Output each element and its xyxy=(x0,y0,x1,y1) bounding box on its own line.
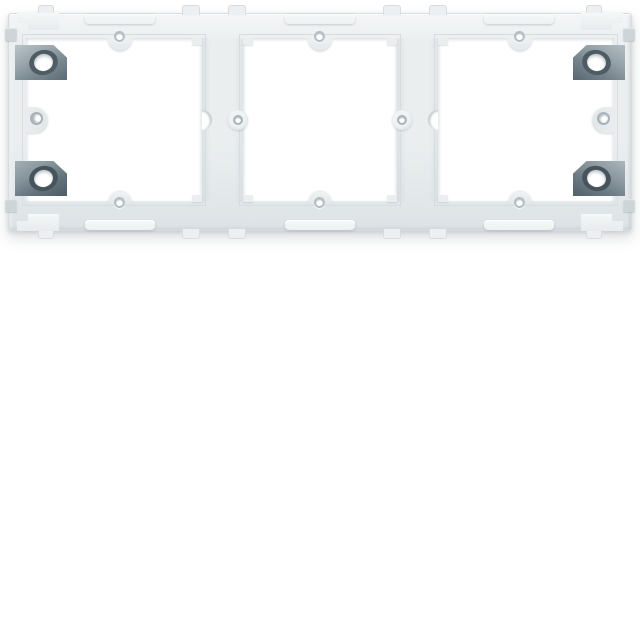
side-bump-right-bottom xyxy=(623,199,635,212)
retaining-tab-bottom-5 xyxy=(429,229,447,239)
side-lug-hole-right xyxy=(597,112,610,125)
opening-corner-step xyxy=(387,195,397,202)
side-bump-left-bottom xyxy=(5,199,17,212)
screw-tab-hole xyxy=(514,197,525,208)
product-photo-stage xyxy=(0,0,640,640)
ridge-bar-bottom-3 xyxy=(484,220,554,230)
retaining-tab-top-2 xyxy=(182,5,200,15)
retaining-tab-top-5 xyxy=(429,5,447,15)
ridge-bar-top-1 xyxy=(85,14,155,24)
retaining-tab-top-3 xyxy=(228,5,246,15)
module-opening-2 xyxy=(243,38,397,202)
retaining-tab-top-4 xyxy=(383,5,401,15)
side-bump-right-top xyxy=(623,28,635,41)
ridge-bar-top-2 xyxy=(285,14,355,24)
opening-corner-step xyxy=(243,38,253,45)
opening-corner-step xyxy=(438,195,448,202)
retaining-tab-bottom-2 xyxy=(182,229,200,239)
opening-corner-step xyxy=(192,195,202,202)
divider-hole-1 xyxy=(233,115,243,125)
screw-tab-hole xyxy=(314,31,325,42)
side-bump-left-top xyxy=(5,28,17,41)
opening-corner-step xyxy=(243,195,253,202)
retaining-tab-bottom-4 xyxy=(383,229,401,239)
opening-corner-step xyxy=(387,38,397,45)
side-lug-hole-left xyxy=(30,112,43,125)
opening-corner-step xyxy=(192,38,202,45)
screw-tab-hole xyxy=(314,197,325,208)
ridge-bar-bottom-2 xyxy=(285,220,355,230)
ridge-bar-bottom-1 xyxy=(85,220,155,230)
divider-hole-2 xyxy=(397,115,407,125)
retaining-tab-bottom-3 xyxy=(228,229,246,239)
opening-corner-step xyxy=(438,38,448,45)
screw-tab-hole xyxy=(514,31,525,42)
screw-tab-hole xyxy=(114,31,125,42)
screw-tab-hole xyxy=(114,197,125,208)
ridge-bar-top-3 xyxy=(484,14,554,24)
